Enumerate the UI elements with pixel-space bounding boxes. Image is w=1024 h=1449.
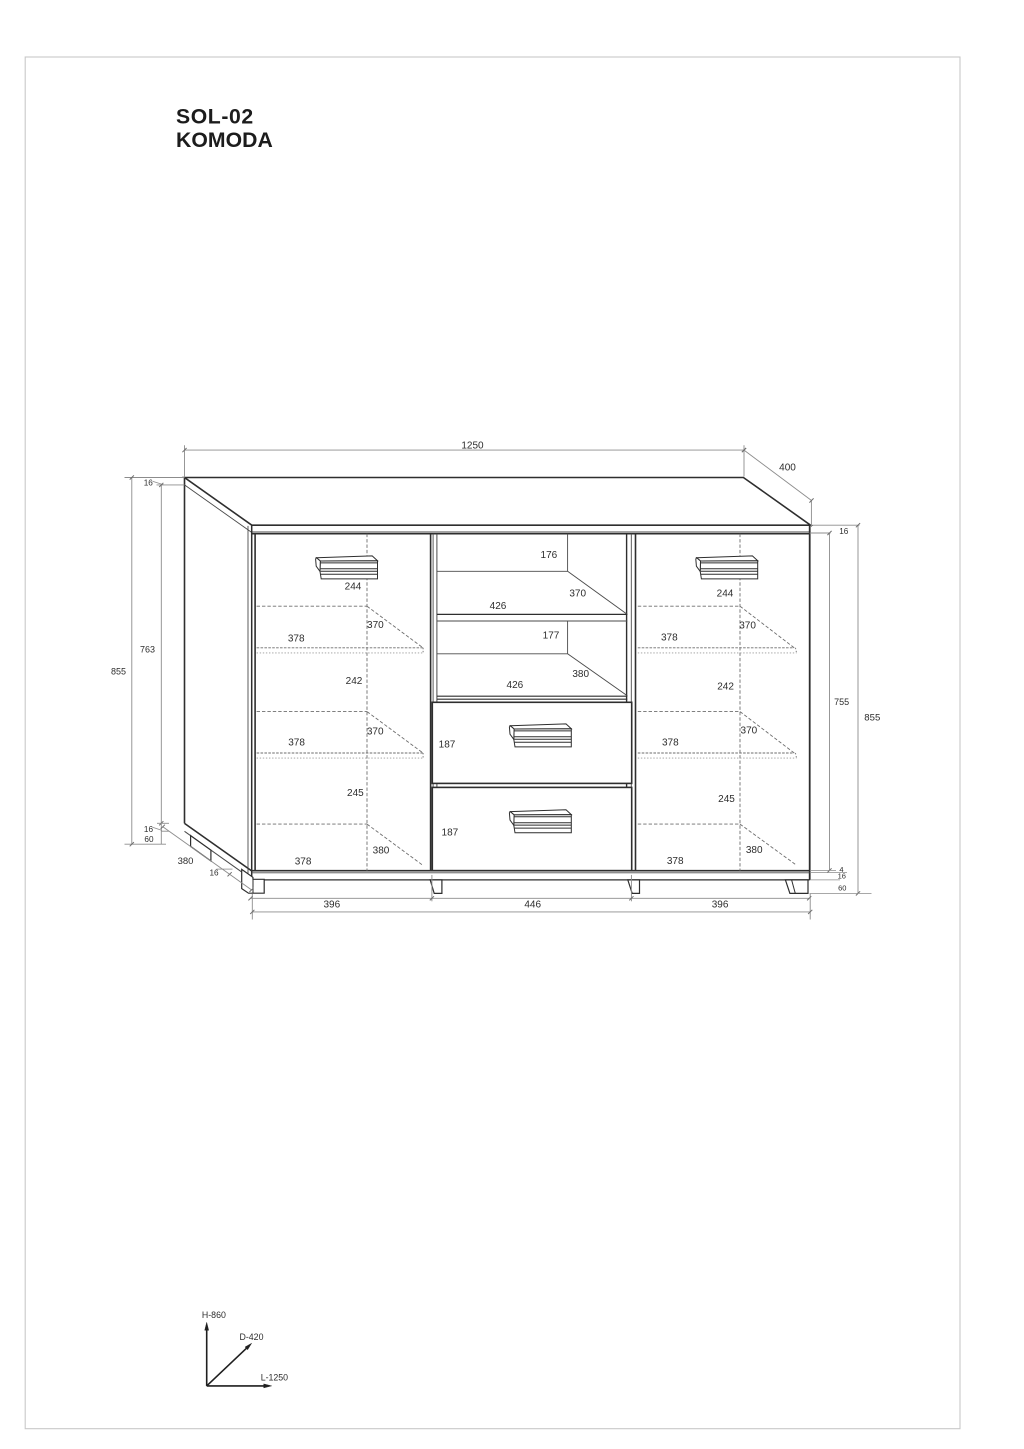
- svg-text:855: 855: [864, 712, 880, 723]
- svg-text:245: 245: [718, 794, 735, 805]
- svg-text:855: 855: [111, 667, 126, 677]
- svg-text:1250: 1250: [461, 440, 484, 451]
- svg-text:396: 396: [712, 899, 729, 910]
- svg-text:242: 242: [346, 676, 363, 687]
- svg-text:370: 370: [739, 620, 756, 631]
- svg-text:370: 370: [741, 725, 758, 736]
- svg-text:380: 380: [746, 845, 763, 856]
- svg-text:242: 242: [717, 682, 734, 693]
- svg-text:378: 378: [667, 856, 684, 867]
- svg-text:370: 370: [569, 588, 586, 599]
- svg-text:177: 177: [543, 630, 560, 641]
- svg-text:16: 16: [144, 478, 154, 487]
- svg-text:245: 245: [347, 788, 364, 799]
- svg-text:396: 396: [323, 899, 340, 910]
- svg-text:187: 187: [442, 828, 459, 839]
- svg-text:L-1250: L-1250: [261, 1373, 288, 1383]
- svg-text:244: 244: [345, 581, 362, 592]
- svg-text:380: 380: [178, 856, 194, 867]
- svg-text:187: 187: [439, 739, 456, 750]
- svg-text:426: 426: [507, 680, 524, 691]
- svg-text:16: 16: [838, 872, 846, 881]
- svg-text:446: 446: [524, 899, 541, 910]
- svg-text:426: 426: [490, 601, 507, 612]
- svg-text:SOL-02: SOL-02: [176, 106, 254, 129]
- svg-text:KOMODA: KOMODA: [176, 129, 273, 152]
- svg-text:16: 16: [144, 825, 154, 834]
- svg-text:16: 16: [839, 527, 849, 536]
- svg-text:378: 378: [288, 738, 305, 749]
- svg-text:380: 380: [572, 669, 589, 680]
- svg-text:16: 16: [209, 869, 219, 878]
- svg-text:H-860: H-860: [202, 1310, 226, 1320]
- svg-text:370: 370: [367, 620, 384, 631]
- svg-text:244: 244: [717, 589, 734, 600]
- svg-text:60: 60: [838, 883, 846, 892]
- svg-text:370: 370: [367, 726, 384, 737]
- svg-text:378: 378: [295, 856, 312, 867]
- svg-text:763: 763: [140, 645, 155, 655]
- svg-text:378: 378: [288, 634, 305, 645]
- svg-text:378: 378: [662, 737, 679, 748]
- svg-text:755: 755: [834, 697, 849, 707]
- svg-text:176: 176: [541, 550, 558, 561]
- svg-text:60: 60: [144, 835, 154, 844]
- svg-text:400: 400: [779, 463, 796, 474]
- svg-text:380: 380: [373, 846, 390, 857]
- svg-text:378: 378: [661, 632, 678, 643]
- svg-text:D-420: D-420: [240, 1332, 264, 1342]
